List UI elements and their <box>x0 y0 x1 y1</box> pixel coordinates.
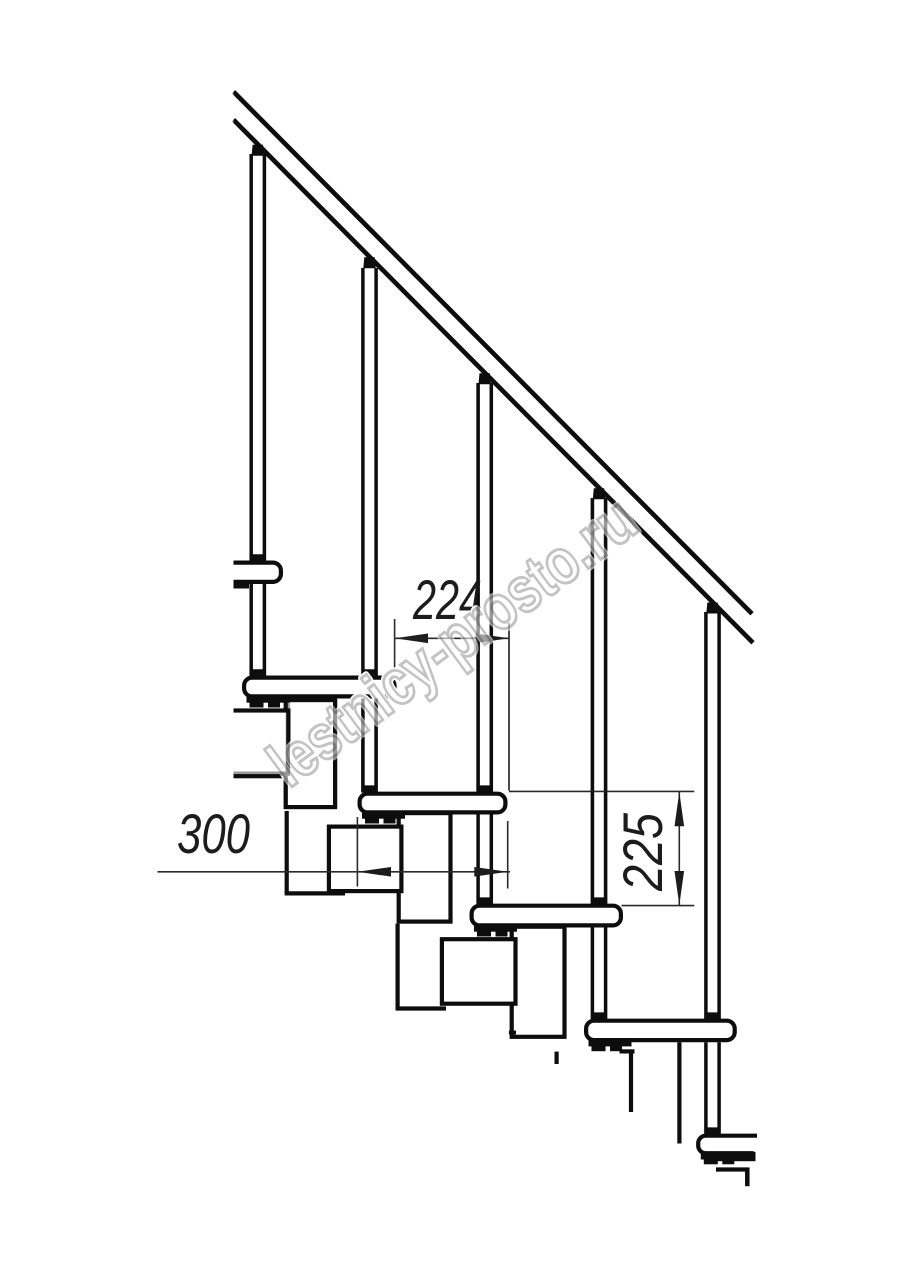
svg-text:300: 300 <box>177 802 250 865</box>
svg-text:225: 225 <box>611 812 674 892</box>
